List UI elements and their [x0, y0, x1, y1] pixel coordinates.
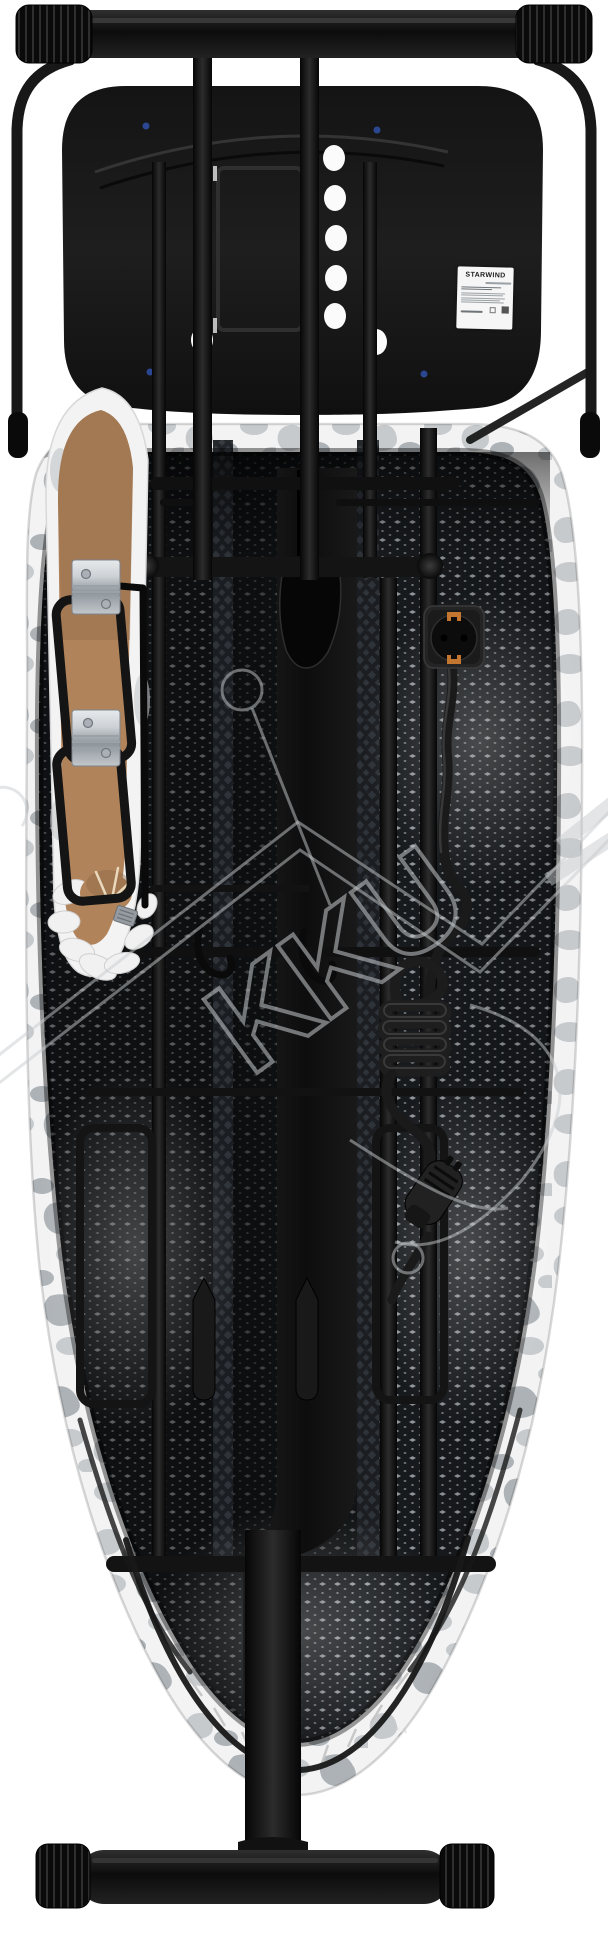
label-fineprint-line: [485, 282, 511, 284]
bracket-screw: [102, 749, 111, 758]
tray-hole: [325, 265, 347, 291]
hanger-bracket: [72, 560, 120, 614]
tray-hole: [325, 225, 347, 251]
screw-dot: [421, 371, 428, 378]
socket-pin-hole: [441, 635, 448, 642]
foot-cap-right: [440, 1844, 494, 1908]
leg-tube: [193, 56, 212, 580]
socket-pin-hole: [461, 635, 468, 642]
pivot-crossbar: [146, 557, 430, 577]
bracket-screw: [102, 600, 111, 609]
crossbar-lower: [86, 1088, 524, 1096]
wire-arm-foot: [8, 412, 28, 458]
wire-arm-foot: [580, 412, 600, 458]
pivot-knob-right: [417, 553, 443, 579]
bracket-glint: [213, 166, 217, 181]
leg-tube: [300, 56, 319, 580]
bracket-glint: [213, 318, 217, 333]
crossbar-thin: [150, 885, 310, 892]
product-label: STARWIND: [456, 266, 513, 329]
bracket-screw: [84, 719, 93, 728]
sleeve-board: [46, 388, 161, 986]
label-fineprint: [461, 292, 509, 304]
label-bottom-row: [461, 305, 509, 313]
foot-bar-highlight: [92, 1858, 438, 1863]
wire-arm-left: [17, 60, 70, 416]
label-fineprint-line: [461, 302, 504, 304]
label-fineprint-line: [461, 295, 503, 297]
eac-mark: [502, 306, 509, 313]
label-cert-mark: [489, 307, 495, 313]
brand-text: STARWIND: [461, 271, 509, 280]
leg-rail-right-inner-top: [363, 162, 377, 578]
label-fineprint-line: [461, 288, 492, 290]
screw-dot: [374, 127, 381, 134]
frame-rod: [336, 499, 540, 506]
label-fineprint: [461, 286, 509, 291]
leg-paddle: [296, 1278, 318, 1400]
top-bar-highlight: [40, 18, 570, 23]
scene: KKU: [0, 0, 608, 1949]
hanger-bracket: [72, 710, 120, 766]
product-photo-ironing-board: KKU STARWIND: [0, 0, 608, 1949]
top-cap-left: [16, 5, 92, 63]
tray-hole: [323, 145, 345, 171]
watermark-edge-fragment-left: [0, 787, 27, 826]
foot-post: [245, 1530, 301, 1860]
foot-cap-left: [36, 1844, 90, 1908]
screw-dot: [143, 123, 150, 130]
tray-hole: [324, 185, 346, 211]
top-cap-right: [516, 5, 592, 63]
power-socket: [424, 606, 484, 668]
bracket-screw: [82, 570, 91, 579]
top-foot-bar: [22, 10, 586, 58]
tray-hole: [324, 303, 346, 329]
leg-paddle: [193, 1278, 215, 1400]
socket-recess: [431, 615, 477, 661]
label-fineprint-line: [461, 311, 483, 313]
wire-arm-right: [538, 60, 591, 416]
